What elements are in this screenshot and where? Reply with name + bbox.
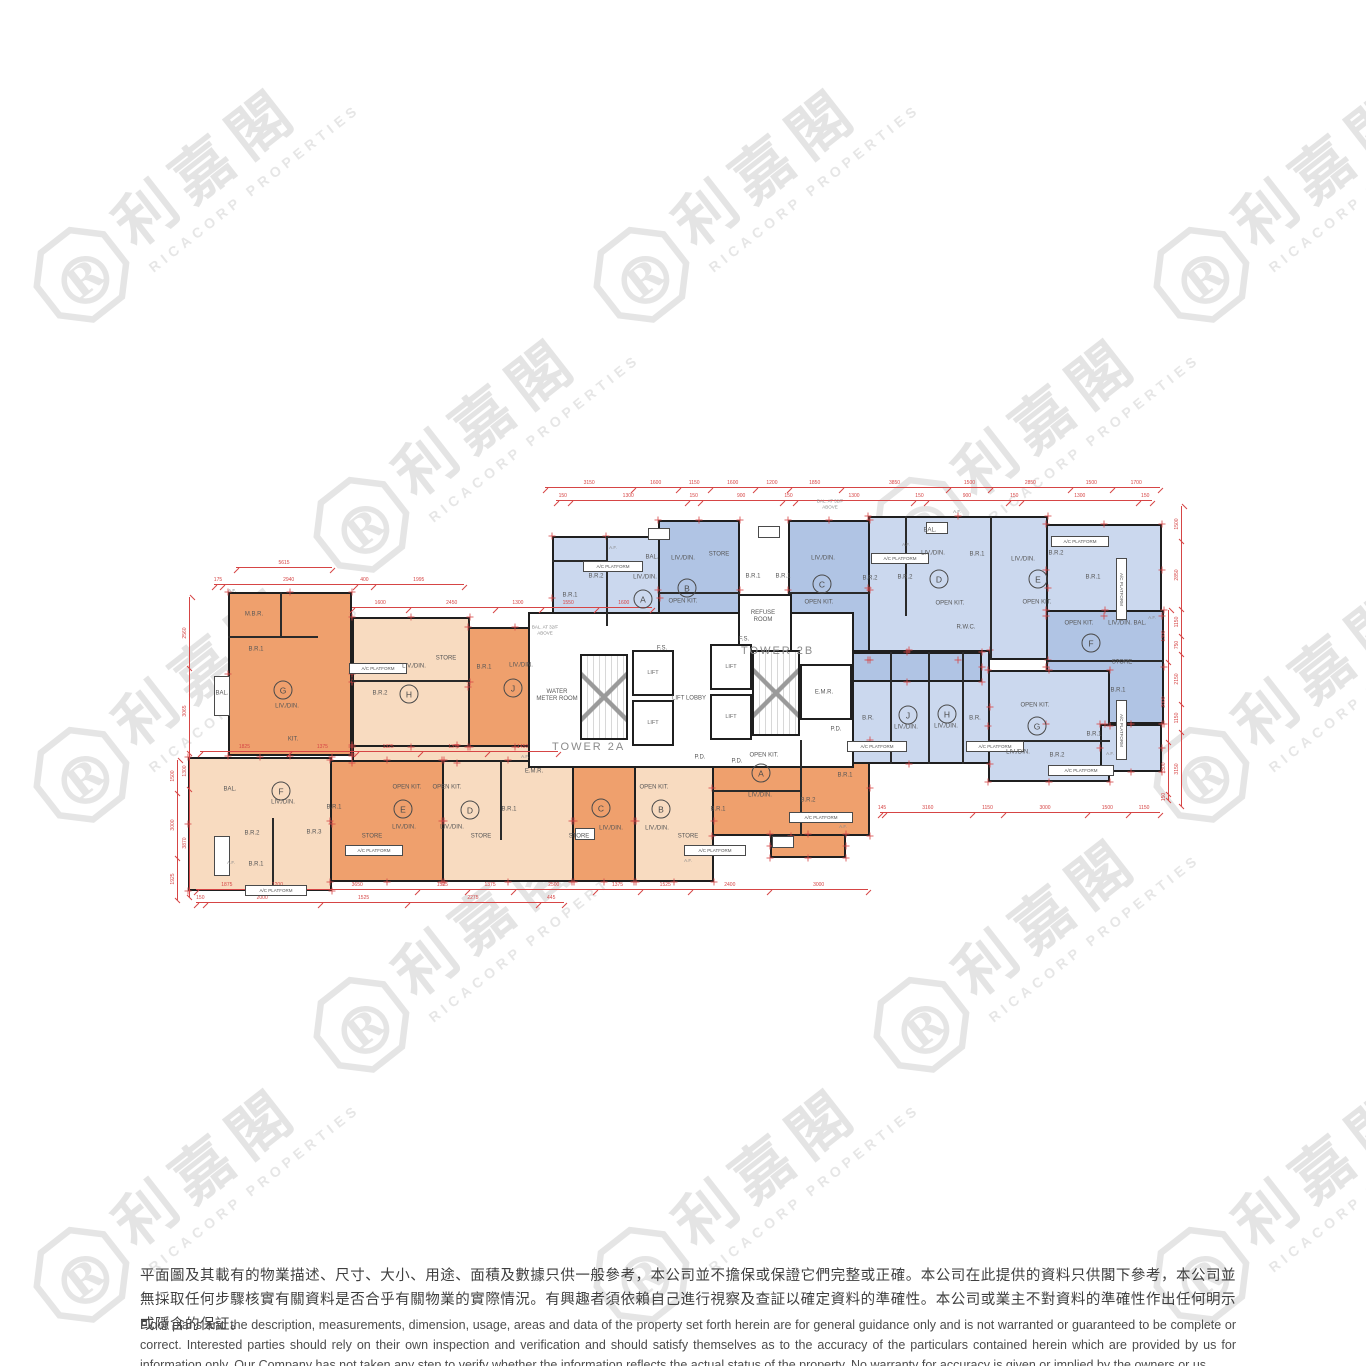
dimension-cross xyxy=(1107,779,1114,786)
room-label: OPEN KIT. xyxy=(392,784,421,791)
dimension-tick xyxy=(198,752,204,758)
dimension-value: 150 xyxy=(196,895,204,901)
unit-circle: B xyxy=(678,579,697,598)
dimension-tick xyxy=(234,568,240,574)
dimension-cross xyxy=(709,833,716,840)
staircase xyxy=(580,654,628,740)
dimension-line: 14531601150300015001150 xyxy=(880,812,1160,820)
room-label: BAL. xyxy=(223,786,236,793)
dimension-tick xyxy=(638,890,644,896)
dimension-cross xyxy=(465,684,472,691)
dimension-cross xyxy=(349,760,356,767)
dimension-value: 1825 xyxy=(239,744,250,750)
interior-wall xyxy=(928,652,930,764)
unit-circle: J xyxy=(504,679,523,698)
dimension-cross xyxy=(327,818,334,825)
dimension-rule xyxy=(177,760,178,900)
dimension-tick xyxy=(567,501,573,507)
dimension-value: 150 xyxy=(559,493,567,499)
dimension-tick xyxy=(1126,813,1132,819)
room-label: R.W.C. xyxy=(957,624,976,631)
dimension-line: 2560306513003870 xyxy=(189,597,197,897)
dimension-cross xyxy=(737,517,744,524)
dimension-tick xyxy=(753,488,759,494)
room-label: LIV./DIN. xyxy=(275,703,299,710)
dimension-cross xyxy=(512,624,519,631)
dimension-value: 1150 xyxy=(982,805,993,811)
dimension-cross xyxy=(987,761,994,768)
dimension-tick xyxy=(969,813,975,819)
dimension-value: 1500 xyxy=(1174,518,1180,529)
dimension-cross xyxy=(601,879,608,886)
dimension-tick xyxy=(1110,488,1116,494)
dimension-tick xyxy=(866,890,872,896)
room-label: BAL. xyxy=(1133,620,1146,627)
dimension-cross xyxy=(327,879,334,886)
interior-wall xyxy=(962,652,964,764)
dimension-value: 1525 xyxy=(437,882,448,888)
dimension-value: 3650 xyxy=(352,882,363,888)
dimension-value: 3850 xyxy=(889,480,900,486)
dimension-cross xyxy=(465,624,472,631)
dimension-cross xyxy=(349,742,356,749)
dimension-cross xyxy=(826,517,833,524)
annotation-note: A.F. xyxy=(521,754,529,760)
dimension-tick xyxy=(510,890,516,896)
dimension-cross xyxy=(1045,585,1052,592)
dimension-tick xyxy=(190,595,196,601)
room-label: BAL. xyxy=(645,554,658,561)
dimension-cross xyxy=(454,760,461,767)
room-label: B.R.1 xyxy=(710,806,725,813)
dimension-tick xyxy=(779,501,785,507)
dimension-value: 1300 xyxy=(512,600,523,606)
room-label: B.R.1 xyxy=(1110,687,1125,694)
dimension-tick xyxy=(676,488,682,494)
room-label: LIV./DIN. xyxy=(748,792,772,799)
dimension-cross xyxy=(987,704,994,711)
room-label: LIV./DIN. xyxy=(271,799,295,806)
dimension-cross xyxy=(1161,607,1168,614)
ac-platform-box xyxy=(758,526,780,538)
room-label: B.R.1 xyxy=(248,646,263,653)
room-label: KIT. xyxy=(288,736,298,743)
room-label: B.R.1 xyxy=(476,664,491,671)
dimension-tick xyxy=(317,903,323,909)
dimension-tick xyxy=(688,890,694,896)
room-label: B.R.1 xyxy=(775,573,790,580)
dimension-cross xyxy=(549,595,556,602)
interior-wall xyxy=(352,680,470,682)
dimension-cross xyxy=(1128,769,1135,776)
dimension-cross xyxy=(1107,667,1114,674)
annotation-note: A.F. xyxy=(684,858,692,864)
dimension-cross xyxy=(865,657,872,664)
interior-wall xyxy=(658,592,740,594)
dimension-line: 18251375132513751450 xyxy=(200,751,558,759)
ac-platform-box: A/C PLATFORM xyxy=(1116,700,1127,760)
dimension-value: 1375 xyxy=(317,744,328,750)
dimension-tick xyxy=(418,752,424,758)
dimension-line: 17529404001995 xyxy=(214,584,464,592)
dimension-rule xyxy=(189,597,190,897)
dimension-value: 1200 xyxy=(766,480,777,486)
dimension-tick xyxy=(1068,488,1074,494)
dimension-cross xyxy=(865,513,872,520)
unit-block xyxy=(634,760,714,882)
dimension-cross xyxy=(1097,721,1104,728)
dimension-value: 1375 xyxy=(484,882,495,888)
ac-platform-box: A/C PLATFORM xyxy=(245,885,307,896)
dimension-cross xyxy=(867,833,874,840)
dimension-tick xyxy=(202,903,208,909)
unit-circle: H xyxy=(400,685,419,704)
dimension-cross xyxy=(1102,607,1109,614)
dimension-value: 1550 xyxy=(563,600,574,606)
dimension-cross xyxy=(955,657,962,664)
dimension-tick xyxy=(1182,504,1188,510)
dimension-value: 3000 xyxy=(170,820,176,831)
room-label: STORE xyxy=(569,833,590,840)
dimension-cross xyxy=(843,843,850,850)
dimension-cross xyxy=(465,744,472,751)
dimension-cross xyxy=(867,785,874,792)
ac-platform-box: A/C PLATFORM xyxy=(1051,536,1109,547)
dimension-value: 1600 xyxy=(650,480,661,486)
dimension-tick xyxy=(767,890,773,896)
room-label: E.M.R. xyxy=(525,768,543,775)
room-label: B.R.2 xyxy=(372,690,387,697)
annotation-note: A.F. xyxy=(839,824,847,830)
dimension-cross xyxy=(711,818,718,825)
dimension-tick xyxy=(536,903,542,909)
room-label: B.R.1 xyxy=(969,551,984,558)
annotation-note: A.F. xyxy=(1106,751,1114,757)
unit-circle: G xyxy=(274,681,293,700)
ac-platform-box: A/C PLATFORM xyxy=(583,561,643,572)
dimension-value: 2500 xyxy=(548,882,559,888)
ac-platform-box xyxy=(772,836,794,848)
dimension-rule xyxy=(200,751,558,752)
dimension-tick xyxy=(485,752,491,758)
dimension-cross xyxy=(1128,721,1135,728)
room-label: LIV./DIN. xyxy=(509,662,533,669)
dimension-line: 150130015090015013001509001501300150 xyxy=(556,500,1152,508)
dimension-tick xyxy=(1158,488,1164,494)
unit-circle: D xyxy=(461,801,480,820)
room-label: B.R.1 xyxy=(1086,731,1101,738)
interior-wall xyxy=(905,516,907,616)
room-label: LIV./DIN. xyxy=(1011,556,1035,563)
dimension-cross xyxy=(569,879,576,886)
room-label: OPEN KIT. xyxy=(432,784,461,791)
interior-wall xyxy=(1046,660,1164,662)
dimension-cross xyxy=(1046,667,1053,674)
dimension-cross xyxy=(1046,779,1053,786)
dimension-tick xyxy=(1158,813,1164,819)
dimension-tick xyxy=(212,585,218,591)
dimension-cross xyxy=(805,855,812,862)
dimension-value: 5615 xyxy=(278,560,289,566)
dimension-cross xyxy=(906,761,913,768)
room-label: LIV./DIN. xyxy=(645,825,669,832)
unit-circle: F xyxy=(1082,634,1101,653)
dimension-value: 1525 xyxy=(660,882,671,888)
room-label: LIV./DIN. xyxy=(633,574,657,581)
dimension-cross xyxy=(1159,521,1166,528)
dimension-cross xyxy=(671,879,678,886)
dimension-cross xyxy=(1097,745,1104,752)
lift-shaft: LIFT xyxy=(632,700,674,746)
room-label: P.D. xyxy=(831,726,842,733)
dimension-value: 145 xyxy=(878,805,886,811)
unit-circle: A xyxy=(752,764,771,783)
dimension-value: 1600 xyxy=(727,480,738,486)
page-canvas: R利嘉閣RICACORP PROPERTIESR利嘉閣RICACORP PROP… xyxy=(0,0,1366,1366)
room-label: LIV./DIN. xyxy=(934,723,958,730)
dimension-tick xyxy=(178,758,184,764)
unit-circle: F xyxy=(272,782,291,801)
dimension-tick xyxy=(1169,608,1175,614)
dimension-tick xyxy=(1084,813,1090,819)
dimension-cross xyxy=(785,517,792,524)
dimension-value: 2850 xyxy=(1174,570,1180,581)
dimension-cross xyxy=(1043,607,1050,614)
dimension-tick xyxy=(554,501,560,507)
dimension-tick xyxy=(685,501,691,507)
dimension-value: 150 xyxy=(784,493,792,499)
dimension-value: 1150 xyxy=(689,480,700,486)
room-label: LIV./DIN. xyxy=(671,555,695,562)
room-label: B.R. xyxy=(969,715,981,722)
unit-circle: E xyxy=(1029,570,1048,589)
room-label: B.R.3 xyxy=(306,829,321,836)
annotation-note: BAL. AT 32/F ABOVE xyxy=(817,498,843,509)
room-label: LIV./DIN. xyxy=(599,825,623,832)
dimension-cross xyxy=(1159,745,1166,752)
room-label: B.R.2 xyxy=(897,574,912,581)
dimension-value: 150 xyxy=(1141,493,1149,499)
room-label: REFUSE ROOM xyxy=(745,610,781,624)
annotation-note: A.F. xyxy=(902,542,910,548)
dimension-tick xyxy=(946,488,952,494)
room-label: B.R.2 xyxy=(1048,550,1063,557)
dimension-tick xyxy=(194,903,200,909)
room-label: LIV./DIN. xyxy=(392,824,416,831)
dimension-tick xyxy=(462,585,468,591)
room-label: BAL. xyxy=(923,527,936,534)
room-label: P.D. xyxy=(732,758,743,765)
room-label: OPEN KIT. xyxy=(1020,702,1049,709)
room-label: STORE xyxy=(362,833,383,840)
room-label: B.R.2 xyxy=(862,575,877,582)
dimension-cross xyxy=(711,879,718,886)
dimension-cross xyxy=(1101,521,1108,528)
dimension-tick xyxy=(405,903,411,909)
unit-circle: A xyxy=(634,590,653,609)
dimension-tick xyxy=(371,585,377,591)
room-label: F.S. xyxy=(657,645,667,652)
dimension-tick xyxy=(330,568,336,574)
ac-platform-box: A/C PLATFORM xyxy=(1048,765,1114,776)
dimension-cross xyxy=(1161,664,1168,671)
room-label: LIV./DIN. xyxy=(894,724,918,731)
dimension-value: 2000 xyxy=(1161,696,1167,707)
interior-wall xyxy=(280,592,282,636)
room-label: B.R.1 xyxy=(745,573,760,580)
dimension-cross xyxy=(657,595,664,602)
dimension-tick xyxy=(1001,813,1007,819)
unit-circle: B xyxy=(652,800,671,819)
dimension-cross xyxy=(1107,723,1114,730)
dimension-value: 1875 xyxy=(221,882,232,888)
room-label: WATER METER ROOM xyxy=(536,689,578,703)
room-label: B.R.1 xyxy=(248,861,263,868)
annotation-note: A.F. xyxy=(228,588,236,594)
dimension-tick xyxy=(562,903,568,909)
unit-block xyxy=(330,760,444,882)
dimension-value: 1300 xyxy=(848,493,859,499)
room-label: B.R.1 xyxy=(1085,574,1100,581)
unit-circle: C xyxy=(813,575,832,594)
dimension-tick xyxy=(543,488,549,494)
dimension-cross xyxy=(979,679,986,686)
room-label: OPEN KIT. xyxy=(1064,620,1093,627)
dimension-rule xyxy=(214,584,464,585)
dimension-value: 150 xyxy=(915,493,923,499)
room-label: B.R. xyxy=(862,715,874,722)
dimension-value: 400 xyxy=(360,577,368,583)
interior-wall xyxy=(228,636,318,638)
room-label: B.R.2 xyxy=(800,797,815,804)
dimension-value: 1925 xyxy=(170,873,176,884)
dimension-tick xyxy=(1019,501,1025,507)
dimension-value: 1300 xyxy=(623,493,634,499)
room-label: OPEN KIT. xyxy=(1022,599,1051,606)
dimension-value: 1300 xyxy=(1161,762,1167,773)
dimension-line: 150028501150750215011503150 xyxy=(1181,506,1189,806)
dimension-cross xyxy=(631,879,638,886)
dimension-tick xyxy=(538,608,544,614)
dimension-value: 3150 xyxy=(584,480,595,486)
dimension-tick xyxy=(493,608,499,614)
dimension-cross xyxy=(569,818,576,825)
room-label: LIV./DIN. xyxy=(1108,620,1132,627)
dimension-value: 1500 xyxy=(964,480,975,486)
annotation-note: A.F. xyxy=(609,545,617,551)
tower-label: TOWER 2A xyxy=(552,741,625,753)
dimension-value: 1450 xyxy=(517,744,528,750)
dimension-cross xyxy=(767,855,774,862)
dimension-line: 5615 xyxy=(236,567,332,575)
dimension-value: 1500 xyxy=(1102,805,1113,811)
dimension-value: 3000 xyxy=(813,882,824,888)
dimension-cross xyxy=(985,723,992,730)
dimension-cross xyxy=(904,679,911,686)
room-label: E.M.R. xyxy=(815,689,833,696)
dimension-cross xyxy=(1159,721,1166,728)
dimension-value: 175 xyxy=(214,577,222,583)
room-label: OPEN KIT. xyxy=(804,599,833,606)
dimension-value: 1150 xyxy=(1139,805,1150,811)
dimension-tick xyxy=(910,501,916,507)
room-label: STORE xyxy=(1112,659,1133,666)
ac-platform-box xyxy=(648,528,670,540)
dimension-tick xyxy=(1150,501,1156,507)
unit-block xyxy=(868,516,1048,660)
room-label: OPEN KIT. xyxy=(639,784,668,791)
dimension-cross xyxy=(696,517,703,524)
dimension-value: 1300 xyxy=(1074,493,1085,499)
room-label: OPEN KIT. xyxy=(749,752,778,759)
ac-platform-box: A/C PLATFORM xyxy=(1116,558,1127,620)
dimension-value: 1325 xyxy=(383,744,394,750)
dimension-value: 3065 xyxy=(182,705,188,716)
dimension-value: 2560 xyxy=(182,627,188,638)
dimension-cross xyxy=(1043,521,1050,528)
interior-wall xyxy=(990,516,992,660)
dimension-value: 1375 xyxy=(448,744,459,750)
room-label: OPEN KIT. xyxy=(935,600,964,607)
dimension-cross xyxy=(1159,567,1166,574)
room-label: STORE xyxy=(678,833,699,840)
room-label: LIV./DIN. xyxy=(440,824,464,831)
room-label: BAL. xyxy=(215,690,228,697)
dimension-tick xyxy=(838,488,844,494)
dimension-line: 150030001925 xyxy=(177,760,185,900)
dimension-value: 2400 xyxy=(724,882,735,888)
dimension-cross xyxy=(843,831,850,838)
dimension-value: 1850 xyxy=(809,480,820,486)
dimension-cross xyxy=(805,831,812,838)
room-label: P.D. xyxy=(695,754,706,761)
ac-platform-box: A/C PLATFORM xyxy=(349,663,407,674)
dimension-value: 150 xyxy=(1010,493,1018,499)
dimension-rule xyxy=(880,812,1160,813)
dimension-rule xyxy=(545,487,1160,488)
dimension-value: 150 xyxy=(690,493,698,499)
room-label: B.R.2 xyxy=(244,830,259,837)
dimension-cross xyxy=(1043,613,1050,620)
room-label: STORE xyxy=(436,655,457,662)
dimension-value: 445 xyxy=(547,895,555,901)
room-label: B.R.1 xyxy=(326,804,341,811)
dimension-rule xyxy=(236,567,332,568)
dimension-value: 3000 xyxy=(1039,805,1050,811)
annotation-note: A.F. xyxy=(953,509,961,515)
dimension-tick xyxy=(220,585,226,591)
dimension-tick xyxy=(353,585,359,591)
dimension-cross xyxy=(549,533,556,540)
unit-circle: H xyxy=(938,705,957,724)
room-label: B.R.2 xyxy=(588,573,603,580)
annotation-note: A.F. xyxy=(1148,615,1156,621)
dimension-rule xyxy=(196,902,564,903)
floor-plan: LIFTLIFTLIFTLIFTA/C PLATFORMA/C PLATFORM… xyxy=(0,0,1366,1366)
dimension-rule xyxy=(1168,610,1169,800)
dimension-cross xyxy=(384,879,391,886)
room-label: B.R.1 xyxy=(837,772,852,779)
room-label: M.B.R. xyxy=(245,611,263,618)
dimension-value: 900 xyxy=(737,493,745,499)
dimension-tick xyxy=(287,752,293,758)
dimension-value: 1600 xyxy=(618,600,629,606)
unit-block xyxy=(442,760,574,882)
dimension-value: 1375 xyxy=(612,882,623,888)
dimension-cross xyxy=(1159,613,1166,620)
unit-circle: J xyxy=(899,706,918,725)
staircase xyxy=(752,650,800,736)
